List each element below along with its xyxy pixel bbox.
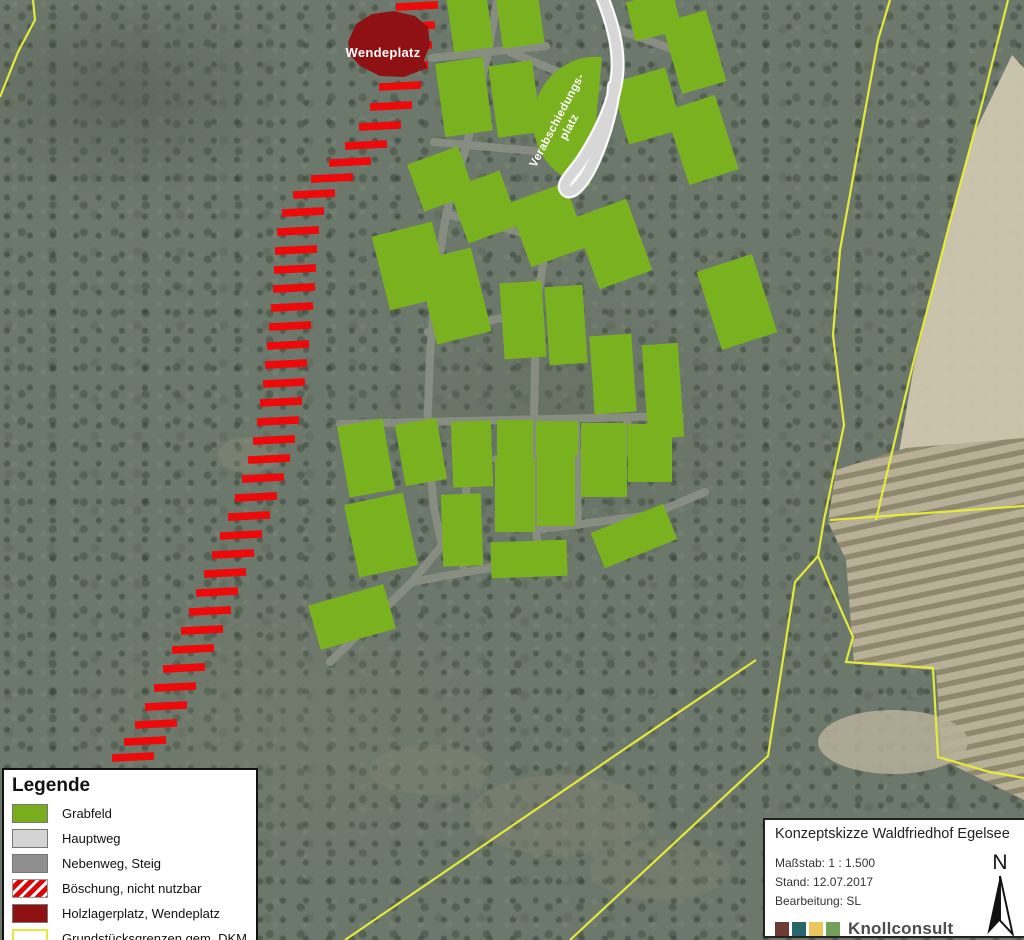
farm-field-region: [898, 55, 1024, 470]
legend-label: Grabfeld: [62, 806, 112, 821]
grabfeld-parcel: [544, 285, 587, 365]
logo-square: [792, 922, 806, 936]
grundstuecksgrenzen-swatch: [12, 929, 48, 940]
clearing-patch: [470, 775, 650, 855]
grabfeld-parcel: [435, 57, 493, 137]
boeschung-bar: [212, 549, 254, 559]
boeschung-bar: [267, 340, 309, 350]
north-arrow-icon: N: [979, 852, 1021, 938]
boeschung-bar: [277, 226, 319, 236]
boeschung-bar: [204, 568, 246, 578]
boeschung-bar: [345, 140, 387, 150]
boeschung-bar: [273, 283, 315, 293]
boeschung-bar: [269, 321, 311, 331]
boeschung-bar: [196, 587, 238, 597]
legend-item: Hauptweg: [12, 826, 248, 851]
grabfeld-parcel: [446, 0, 493, 53]
legend-panel: Legende Grabfeld Hauptweg Nebenweg, Stei…: [2, 768, 258, 940]
boeschung-bar: [265, 359, 307, 369]
grabfeld-parcel: [574, 199, 653, 290]
grabfeld-parcel: [441, 493, 483, 566]
boeschung-bar: [135, 719, 177, 729]
legend-item: Böschung, nicht nutzbar: [12, 876, 248, 901]
boeschung-bar: [189, 606, 231, 616]
grabfeld-parcel: [395, 418, 447, 486]
boeschung-bar: [145, 701, 187, 711]
logo-square: [809, 922, 823, 936]
grabfeld-parcel: [499, 281, 546, 360]
boeschung-swatch: [12, 879, 48, 898]
grabfeld-parcel: [451, 420, 493, 487]
legend-label: Hauptweg: [62, 831, 121, 846]
grabfeld-parcel: [495, 458, 535, 532]
legend-item: Nebenweg, Steig: [12, 851, 248, 876]
legend-label: Grundstücksgrenzen gem. DKM: [62, 931, 247, 940]
north-arrow-glyph: [985, 874, 1015, 936]
boeschung-bar: [263, 378, 305, 388]
map-title: Konzeptskizze Waldfriedhof Egelsee: [775, 826, 1021, 842]
boundary-line: [345, 660, 756, 940]
hauptweg-swatch: [12, 829, 48, 848]
boeschung-bar: [154, 682, 196, 692]
boeschung-bar: [257, 416, 299, 426]
boeschung-bar: [370, 101, 412, 111]
boeschung-bar: [112, 752, 154, 762]
grabfeld-parcel: [308, 584, 396, 650]
grabfeld-swatch: [12, 804, 48, 823]
title-block: Konzeptskizze Waldfriedhof Egelsee Maßst…: [763, 818, 1024, 938]
boeschung-bar: [274, 264, 316, 274]
grabfeld-parcel: [490, 540, 567, 579]
logo-squares: [775, 922, 840, 936]
boeschung-bar: [379, 81, 421, 91]
grabfeld-parcel: [589, 334, 636, 415]
map-canvas: WendeplatzVerabschiedungs-platz Legende …: [0, 0, 1024, 940]
wendeplatz-area: [348, 11, 430, 77]
legend-label: Nebenweg, Steig: [62, 856, 161, 871]
logo-square: [775, 922, 789, 936]
legend-item: Grabfeld: [12, 801, 248, 826]
boeschung-bar: [293, 189, 335, 199]
clearing-patch: [818, 710, 968, 774]
company-name: Knollconsult: [848, 919, 953, 938]
grabfeld-parcel: [495, 0, 544, 49]
grabfeld-parcel: [628, 424, 672, 482]
boeschung-bar: [329, 157, 371, 167]
grabfeld-parcel: [662, 10, 727, 94]
clearing-patch: [590, 840, 730, 900]
boeschung-bar: [242, 473, 284, 483]
grabfeld-parcel: [337, 419, 395, 498]
nebenweg-swatch: [12, 854, 48, 873]
grabfeld-parcel: [537, 454, 575, 526]
grabfeld-parcel: [697, 254, 778, 350]
boeschung-bar: [311, 173, 353, 183]
boeschung-bar: [163, 663, 205, 673]
legend-label: Böschung, nicht nutzbar: [62, 881, 201, 896]
grabfeld-parcel: [344, 493, 418, 578]
legend-title: Legende: [12, 775, 248, 797]
boundary-line: [0, 0, 35, 97]
boeschung-bar: [271, 302, 313, 312]
boeschung-bar: [220, 530, 262, 540]
boeschung-bar: [181, 625, 223, 635]
north-label: N: [979, 852, 1021, 873]
legend-item: Holzlagerplatz, Wendeplatz: [12, 901, 248, 926]
logo-square: [826, 922, 840, 936]
boeschung-bar: [235, 492, 277, 502]
grabfeld-parcel: [665, 95, 739, 185]
clearing-patch: [370, 745, 490, 795]
boeschung-bar: [282, 207, 324, 217]
boeschung-bar: [396, 1, 438, 11]
boeschung-bar: [253, 435, 295, 445]
grabfeld-parcel: [536, 421, 578, 455]
legend-item: Grundstücksgrenzen gem. DKM: [12, 926, 248, 940]
holzlagerplatz-swatch: [12, 904, 48, 923]
boeschung-bar: [124, 736, 166, 746]
boeschung-bar: [172, 644, 214, 654]
legend-label: Holzlagerplatz, Wendeplatz: [62, 906, 220, 921]
boeschung-bar: [275, 245, 317, 255]
grabfeld-parcel: [497, 420, 533, 458]
boeschung-bar: [260, 397, 302, 407]
grabfeld-parcel: [581, 423, 627, 497]
wendeplatz-label: Wendeplatz: [346, 45, 421, 60]
boeschung-bar: [359, 121, 401, 131]
boeschung-hatch: [112, 1, 438, 762]
boeschung-bar: [228, 511, 270, 521]
